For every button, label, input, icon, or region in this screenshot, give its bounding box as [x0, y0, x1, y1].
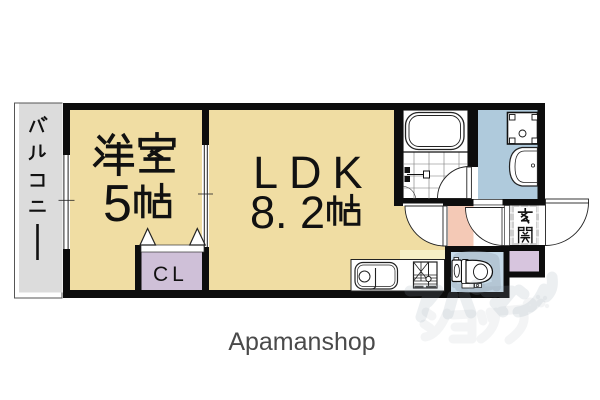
- svg-text:Apamanshop: Apamanshop: [228, 328, 375, 356]
- svg-text:8. 2: 8. 2: [250, 187, 325, 238]
- svg-text:CL: CL: [153, 263, 188, 286]
- svg-text:5: 5: [103, 175, 132, 233]
